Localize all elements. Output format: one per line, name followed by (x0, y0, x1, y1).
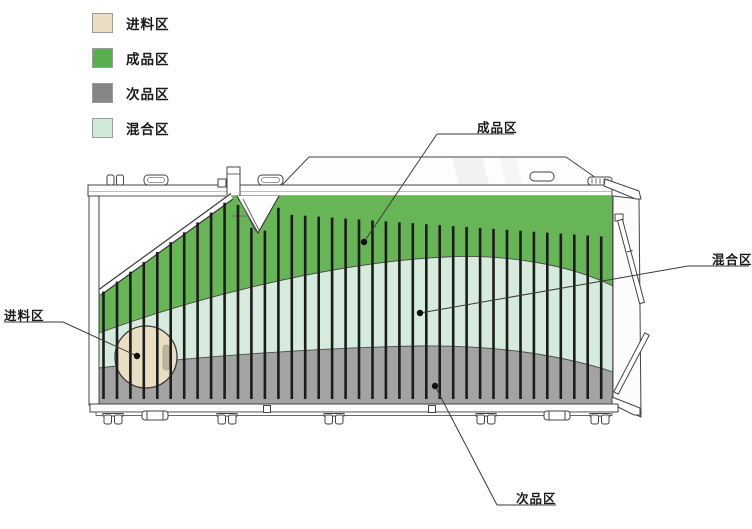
legend-swatch-finished (92, 48, 113, 68)
caster-foot (229, 415, 237, 424)
separation-bar (398, 222, 401, 399)
separation-bar (546, 233, 549, 399)
caster-foot (477, 415, 485, 424)
separation-bar (156, 252, 159, 399)
legend-item-mixed: 混合区 (92, 117, 170, 139)
separation-bar (223, 203, 226, 399)
separation-bar (102, 292, 105, 400)
legend-item-finished: 成品区 (92, 47, 170, 69)
base-bracket (142, 411, 168, 420)
caster-foot (602, 415, 610, 424)
chimney (227, 167, 240, 196)
reject-dot (432, 383, 438, 389)
separation-bar (533, 232, 536, 399)
separation-bar (331, 218, 334, 399)
top-frame (88, 185, 612, 196)
separation-bar (438, 225, 441, 399)
callout-finished-label: 成品区 (477, 117, 518, 136)
separation-bar (169, 242, 172, 399)
rail-tab (264, 406, 271, 413)
legend-swatch-feed (92, 13, 113, 33)
separation-bar (344, 219, 347, 400)
mixed-dot (417, 310, 423, 316)
caster-foot (591, 415, 599, 424)
separation-bar (291, 215, 294, 399)
separation-bar (210, 213, 213, 399)
left-end-column (89, 196, 99, 405)
legend-label-finished: 成品区 (126, 48, 170, 68)
legend-swatch-reject (92, 83, 113, 103)
bolt-icon (218, 179, 226, 187)
right-end-panel (613, 196, 641, 417)
feed-dot (134, 353, 140, 359)
base-rail (90, 404, 618, 412)
bolt-icon (107, 175, 114, 185)
separation-bar (573, 235, 576, 400)
separation-bar (317, 217, 320, 399)
callout-mixed-label: 混合区 (712, 249, 752, 268)
caster-foot (104, 415, 112, 424)
legend-label-reject: 次品区 (126, 83, 170, 103)
separation-bar (371, 220, 374, 399)
legend-label-feed: 进料区 (126, 13, 170, 33)
separation-bar (129, 272, 132, 399)
separation-bar (237, 205, 240, 399)
separation-bar (183, 232, 186, 399)
bolt-icon (117, 175, 124, 185)
legend-item-reject: 次品区 (92, 82, 170, 104)
legend-item-feed: 进料区 (92, 12, 170, 34)
handle-icon (530, 172, 554, 181)
separation-bar (600, 236, 603, 399)
separation-bar (143, 262, 146, 399)
machine-lid (282, 157, 606, 185)
callout-reject-label: 次品区 (516, 488, 557, 507)
separation-bar (304, 216, 307, 399)
caster-foot (115, 415, 123, 424)
separation-bar (116, 282, 119, 399)
separation-bar (479, 228, 482, 399)
legend-swatch-mixed (92, 118, 113, 138)
feed-circle-slot (163, 345, 170, 370)
legend-label-mixed: 混合区 (126, 118, 170, 138)
caster-foot (325, 415, 333, 424)
separation-bar (264, 231, 267, 399)
separation-bar (465, 227, 468, 399)
separation-bar (492, 229, 495, 399)
separation-bar (506, 230, 509, 399)
separation-bar (196, 222, 199, 399)
separation-bar (385, 221, 388, 399)
rail-tab (429, 406, 436, 413)
separation-bar (519, 231, 522, 399)
separation-bar (452, 226, 455, 399)
diagram-canvas: 进料区 成品区 次品区 混合区 成品区 混合区 进料区 次品区 (0, 0, 752, 529)
legend: 进料区 成品区 次品区 混合区 (0, 0, 260, 150)
separation-bar (560, 234, 563, 399)
caster-foot (336, 415, 344, 424)
separation-bar (586, 236, 589, 400)
finished-dot (361, 239, 367, 245)
separation-bar (412, 223, 415, 399)
base-bracket (544, 411, 570, 420)
separation-bar (250, 228, 253, 399)
caster-foot (218, 415, 226, 424)
base-rail-lower (96, 412, 612, 416)
callout-feed-label: 进料区 (4, 305, 45, 324)
caster-foot (488, 415, 496, 424)
separation-bar (277, 208, 280, 399)
separation-bar (358, 220, 361, 400)
